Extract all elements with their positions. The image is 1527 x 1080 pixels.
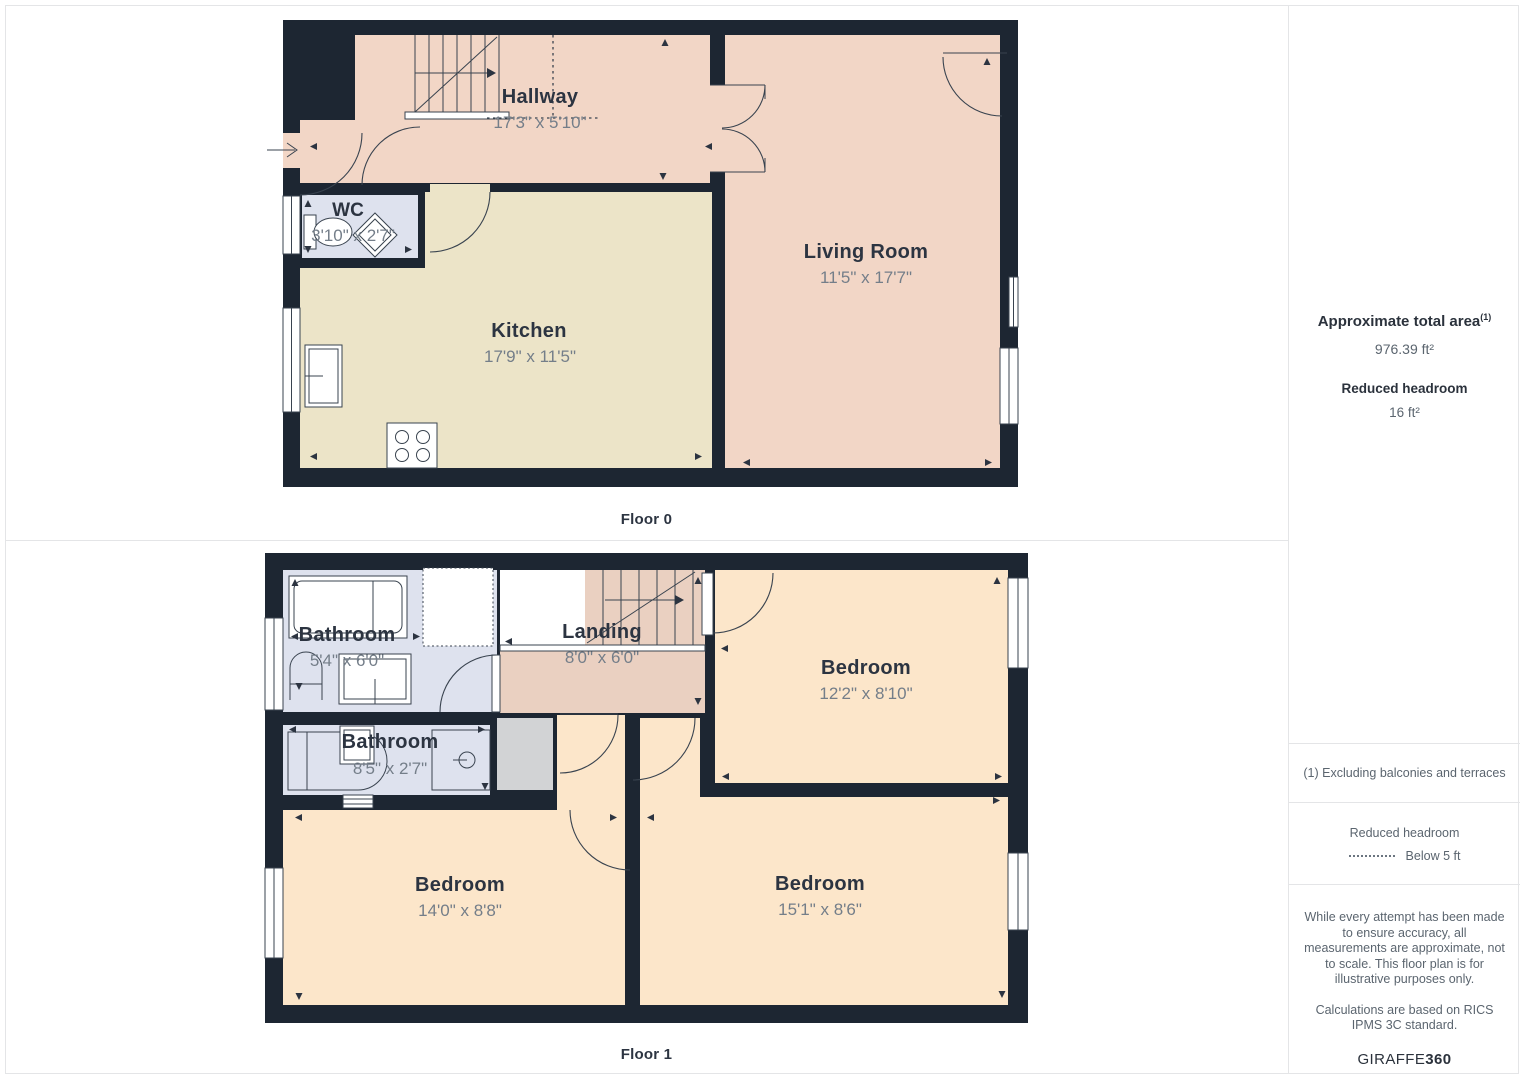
brand-logo: GIRAFFE360 xyxy=(1289,1051,1520,1070)
living-room-dims: 11'5" x 17'7" xyxy=(820,268,912,287)
total-area-value: 976.39 ft² xyxy=(1289,341,1520,357)
landing-label: Landing xyxy=(562,621,642,643)
legend-section: Reduced headroom Below 5 ft xyxy=(1289,802,1520,884)
dotted-line-sample xyxy=(1349,855,1395,857)
headroom-area xyxy=(423,568,493,646)
kitchen-sink xyxy=(305,345,342,407)
sidebar-divider-3 xyxy=(1289,884,1520,885)
info-sidebar: Approximate total area(1) 976.39 ft² Red… xyxy=(1289,5,1520,1074)
kitchen-stove xyxy=(387,423,437,468)
hallway-label: Hallway xyxy=(502,86,579,108)
wc-dims: 3'10" x 2'7" xyxy=(311,226,395,245)
reduced-headroom-value: 16 ft² xyxy=(1289,405,1520,420)
floor0-label: Floor 0 xyxy=(5,511,1288,528)
living-room-label: Living Room xyxy=(804,241,928,263)
hallway-dims: 17'3" x 5'10" xyxy=(493,113,586,132)
wc-label: WC xyxy=(332,200,364,221)
footnote-text: (1) Excluding balconies and terraces xyxy=(1303,766,1505,780)
room-hallway xyxy=(300,35,710,183)
sidebar-divider-2 xyxy=(1289,802,1520,803)
footnote-marker: (1) xyxy=(1480,312,1491,322)
bathroom2-label: Bathroom xyxy=(342,731,439,753)
kitchen-label: Kitchen xyxy=(491,320,566,342)
cupboard xyxy=(497,718,553,790)
legend-title: Reduced headroom xyxy=(1289,826,1520,840)
total-area-title: Approximate total area(1) xyxy=(1289,312,1520,330)
disclaimer-text-1: While every attempt has been made to ens… xyxy=(1303,910,1506,988)
reduced-headroom-title: Reduced headroom xyxy=(1289,381,1520,396)
footnote-section: (1) Excluding balconies and terraces xyxy=(1289,743,1520,802)
floor0-plan: Hallway 17'3" x 5'10" WC 3'10" x 2'7" Ki… xyxy=(265,15,1025,495)
bathroom1-dims: 5'4" x 6'0" xyxy=(310,651,384,670)
legend-item-label: Below 5 ft xyxy=(1406,849,1461,863)
kitchen-dims: 17'9" x 11'5" xyxy=(484,347,576,366)
bathroom1-label: Bathroom xyxy=(299,624,396,646)
floor1-plan: Bathroom 5'4" x 6'0" Landing 8'0" x 6'0"… xyxy=(255,548,1045,1038)
bedroom-br-label: Bedroom xyxy=(775,873,865,895)
sidebar-divider-1 xyxy=(1289,743,1520,744)
landing-dims: 8'0" x 6'0" xyxy=(565,648,639,667)
bedroom-tr-dims: 12'2" x 8'10" xyxy=(819,684,912,703)
bedroom-tr-label: Bedroom xyxy=(821,657,911,679)
floor1-label: Floor 1 xyxy=(5,1046,1288,1063)
bedroom-br-dims: 15'1" x 8'6" xyxy=(778,900,862,919)
disclaimer-section: While every attempt has been made to ens… xyxy=(1289,884,1520,1069)
disclaimer-text-2: Calculations are based on RICS IPMS 3C s… xyxy=(1305,1003,1504,1034)
bedroom-bl-dims: 14'0" x 8'8" xyxy=(418,901,502,920)
bathroom2-dims: 8'5" x 2'7" xyxy=(353,759,427,778)
area-summary: Approximate total area(1) 976.39 ft² Red… xyxy=(1289,5,1520,420)
floor-panel-divider xyxy=(5,540,1288,541)
bedroom-bl-label: Bedroom xyxy=(415,874,505,896)
